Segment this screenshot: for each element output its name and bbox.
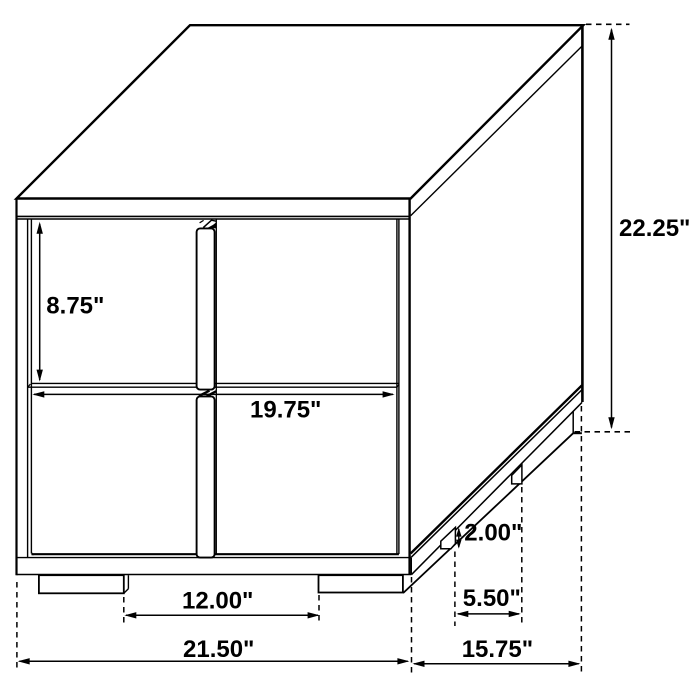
svg-text:12.00": 12.00" bbox=[182, 587, 253, 614]
svg-text:21.50": 21.50" bbox=[183, 636, 254, 663]
svg-text:19.75": 19.75" bbox=[250, 397, 321, 424]
svg-text:8.75": 8.75" bbox=[46, 293, 104, 320]
svg-text:5.50": 5.50" bbox=[463, 585, 521, 612]
svg-text:2.00": 2.00" bbox=[464, 519, 522, 546]
svg-text:15.75": 15.75" bbox=[462, 636, 533, 663]
svg-text:22.25": 22.25" bbox=[619, 215, 690, 242]
